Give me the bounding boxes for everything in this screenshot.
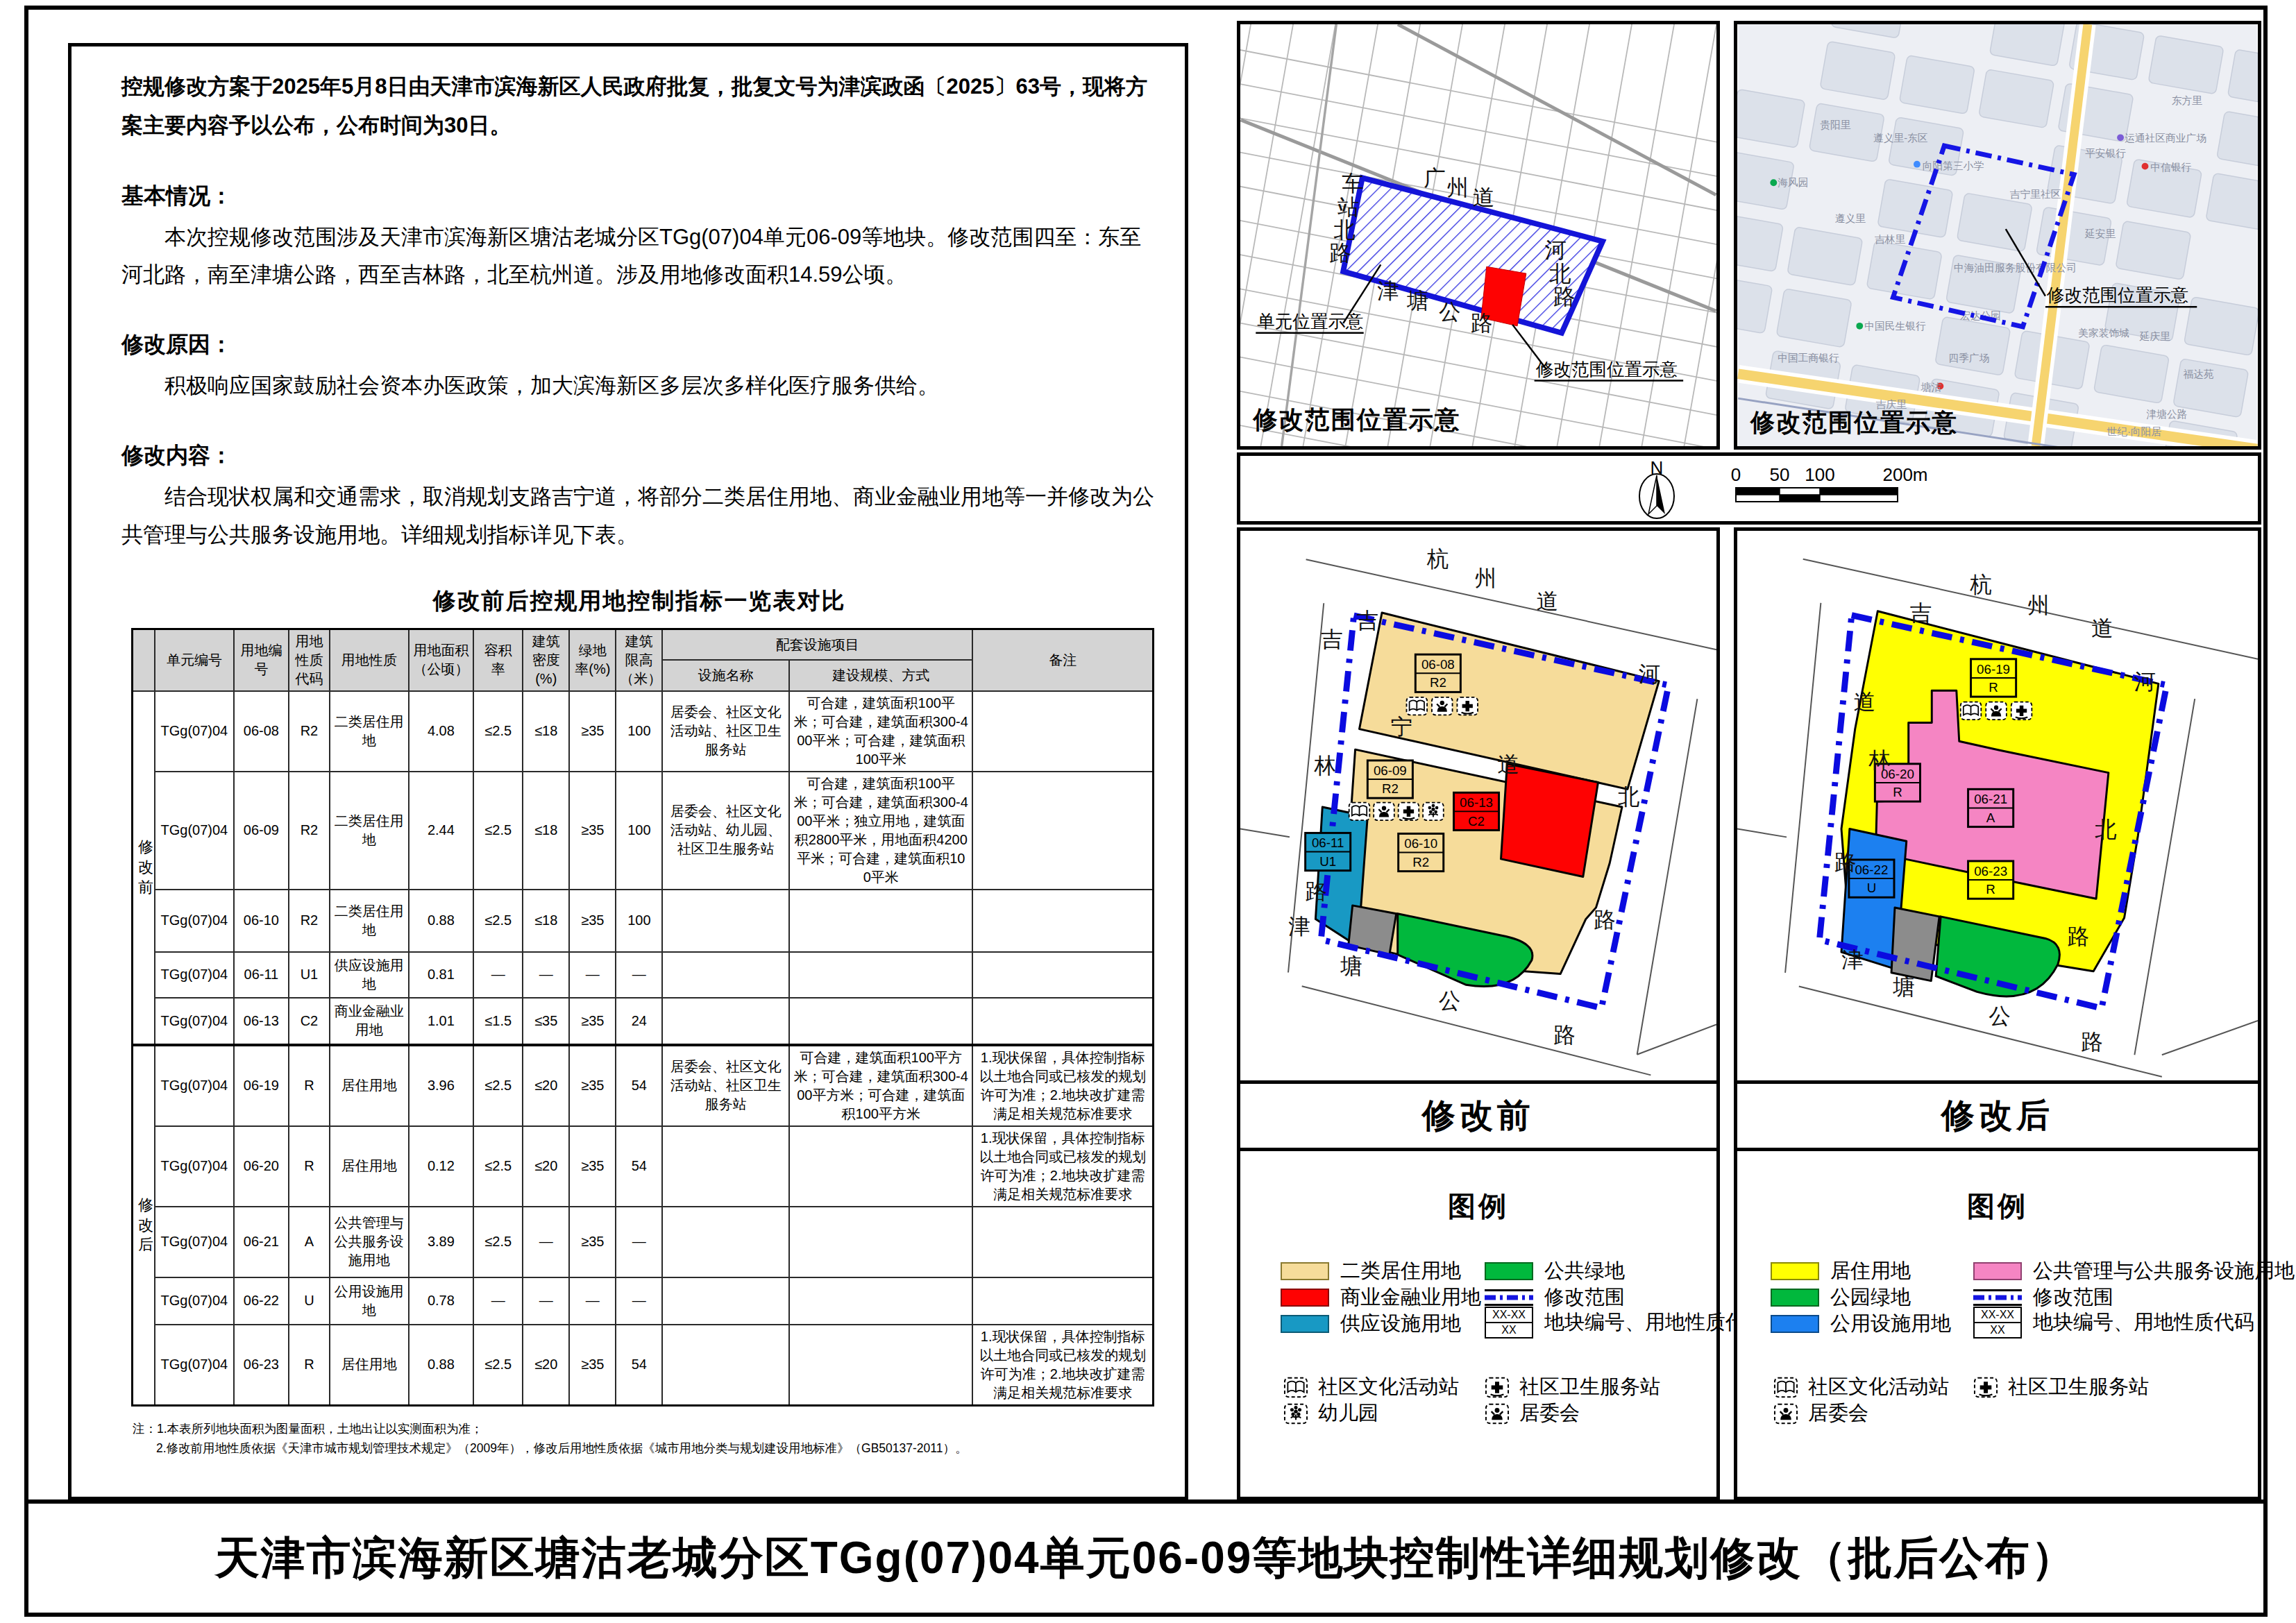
- header-unit-no: 单元编号: [155, 629, 234, 691]
- table-cell: 2.44: [409, 772, 473, 890]
- road-label-char: 津: [1377, 279, 1399, 303]
- table-cell: 24: [616, 998, 662, 1045]
- swatch-public-admin-a: [1973, 1262, 2022, 1280]
- table-cell: [789, 998, 972, 1045]
- plot-code-box: XX-XXXX: [1973, 1307, 2022, 1339]
- section-heading-content: 修改内容：: [121, 441, 1157, 471]
- parcel-label-06-11: 06-11 U1: [1306, 833, 1351, 870]
- legend-label: 地块编号、用地性质代码: [2033, 1309, 2254, 1336]
- svg-text:A: A: [1986, 810, 1995, 825]
- table-cell: 二类居住用地: [330, 890, 409, 952]
- table-cell: [662, 1126, 789, 1207]
- table-cell: R: [289, 1126, 330, 1207]
- table-cell: [972, 890, 1153, 952]
- road-label-char: 路: [1553, 284, 1575, 309]
- section-heading-reason: 修改原因：: [121, 330, 1157, 360]
- road-label-char: 河: [1544, 238, 1566, 262]
- table-cell: 0.78: [409, 1277, 473, 1325]
- table-cell: 06-11: [234, 952, 289, 998]
- table-cell: ≤1.5: [473, 998, 523, 1045]
- table-cell: TGg(07)04: [155, 1126, 234, 1207]
- table-cell: 可合建，建筑面积100平米；可合建，建筑面积300-400平米；独立用地，建筑面…: [789, 772, 972, 890]
- table-cell: 1.01: [409, 998, 473, 1045]
- group-label: 修改前: [133, 691, 155, 1045]
- table-cell: 二类居住用地: [330, 691, 409, 772]
- table-cell: [662, 1325, 789, 1406]
- swatch-modify-range: [1973, 1289, 2022, 1306]
- table-cell: ≤2.5: [473, 890, 523, 952]
- banner: 天津市滨海新区塘沽老城分区TGg(07)04单元06-09等地块控制性详细规划修…: [28, 1499, 2263, 1613]
- road-label-char: 北: [1618, 784, 1640, 809]
- road-label-char: 吉: [1357, 608, 1379, 633]
- table-cell: 06-22: [234, 1277, 289, 1325]
- poi-label: 四季广场: [1948, 352, 1989, 364]
- table-cell: [662, 890, 789, 952]
- swatch-green-space: [1485, 1262, 1533, 1280]
- table-cell: [972, 952, 1153, 998]
- road-label-char: 塘: [1893, 974, 1915, 999]
- table-cell: U: [289, 1277, 330, 1325]
- poi-label: 中海油田服务股份有限公司: [1954, 262, 2077, 273]
- table-cell: [972, 998, 1153, 1045]
- svg-text:06-23: 06-23: [1974, 864, 2007, 878]
- road-label-char: 津: [1288, 914, 1310, 939]
- table-cell: [789, 890, 972, 952]
- road-label-char: 州: [1475, 566, 1497, 590]
- header-remark: 备注: [972, 629, 1153, 691]
- table-cell: 06-08: [234, 691, 289, 772]
- table-cell: ≤18: [523, 691, 569, 772]
- legend-icon-label: 幼儿园: [1318, 1400, 1378, 1427]
- header-facility-scale: 建设规模、方式: [789, 660, 972, 690]
- swatch-commercial-c2: [1281, 1289, 1329, 1307]
- road-label-char: 宁: [1391, 714, 1413, 739]
- table-cell: ≤2.5: [473, 1207, 523, 1277]
- road-label-char: 杭: [1970, 572, 1993, 597]
- svg-text:C2: C2: [1468, 814, 1485, 829]
- callout-scope-label: 修改范围位置示意: [1536, 359, 1678, 379]
- table-note-2: 2.修改前用地性质依据《天津市城市规划管理技术规定》（2009年），修改后用地性…: [133, 1438, 1157, 1458]
- scale-strip-canvas: N 0 50 100 200m: [1240, 456, 2258, 521]
- culture-station-icon: [1349, 803, 1370, 821]
- table-cell: ≤2.5: [473, 1045, 523, 1126]
- table-cell: 居住用地: [330, 1325, 409, 1406]
- road-label-char: 北: [2095, 817, 2117, 842]
- group-label: 修改后: [133, 1045, 155, 1406]
- road-label-char: 路: [1330, 241, 1351, 265]
- scale-tick-0: 0: [1731, 464, 1741, 485]
- swatch-park-green: [1771, 1289, 1819, 1307]
- svg-text:U: U: [1867, 881, 1877, 895]
- road-label-char: 路: [1553, 1022, 1576, 1047]
- table-cell: —: [473, 1277, 523, 1325]
- table-cell: 54: [616, 1325, 662, 1406]
- legend-label: 公共绿地: [1544, 1257, 1625, 1285]
- table-cell: ≤20: [523, 1325, 569, 1406]
- legend-title: 图例: [1240, 1187, 1716, 1225]
- svg-text:R: R: [1893, 785, 1902, 799]
- header-height-limit: 建筑限高（米）: [616, 629, 662, 691]
- parcel-label-06-10: 06-10 R2: [1399, 833, 1444, 871]
- poi-label: 福达苑: [2184, 368, 2214, 380]
- road-label-char: 北: [1333, 218, 1355, 242]
- svg-text:U1: U1: [1319, 854, 1336, 869]
- table-cell: 公共管理与公共服务设施用地: [330, 1207, 409, 1277]
- control-indicators-table: 单元编号 用地编号 用地性质代码 用地性质 用地面积（公顷） 容积率 建筑密度(…: [131, 628, 1154, 1407]
- table-cell: [789, 1207, 972, 1277]
- road-label-char: 路: [1471, 311, 1492, 335]
- svg-text:R2: R2: [1382, 781, 1399, 796]
- road-label-char: 公: [1439, 988, 1461, 1013]
- table-cell: 0.81: [409, 952, 473, 998]
- table-cell: ≤2.5: [473, 772, 523, 890]
- table-cell: ≤20: [523, 1126, 569, 1207]
- plan-bulletin-sheet: 控规修改方案于2025年5月8日由天津市滨海新区人民政府批复，批复文号为津滨政函…: [0, 0, 2296, 1623]
- road-label-char: 州: [2027, 593, 2050, 618]
- poi-label: 世纪·向阳居: [2107, 426, 2161, 437]
- poi-dot-icon: [2142, 163, 2149, 170]
- legend-icon-label: 社区卫生服务站: [1519, 1373, 1660, 1401]
- table-cell: 54: [616, 1045, 662, 1126]
- poi-label: 遵义里: [1835, 213, 1866, 224]
- table-cell: A: [289, 1207, 330, 1277]
- plot-code-box: XX-XXXX: [1485, 1307, 1533, 1339]
- poi-dot-icon: [1914, 161, 1921, 168]
- legend-icon-label: 居委会: [1808, 1400, 1868, 1427]
- road-label-char: 广: [1424, 166, 1445, 190]
- table-cell: 公用设施用地: [330, 1277, 409, 1325]
- road-label-char: 吉: [1910, 600, 1932, 625]
- poi-dot-icon: [1856, 323, 1863, 330]
- legend-label: 二类居住用地: [1340, 1257, 1461, 1285]
- road-label-char: 林: [1313, 753, 1336, 778]
- cross-icon: [1485, 1377, 1510, 1398]
- road-label-char: 公: [1989, 1003, 2011, 1028]
- table-cell: 3.96: [409, 1045, 473, 1126]
- table-cell: 0.88: [409, 890, 473, 952]
- legend-title: 图例: [1737, 1187, 2258, 1225]
- table-cell: ≤18: [523, 890, 569, 952]
- poi-label: 塘沽: [1921, 382, 1942, 393]
- legend-label: 修改范围: [2033, 1284, 2113, 1311]
- legend-label: 公园绿地: [1830, 1284, 1911, 1311]
- poi-label: 遵义里-东区: [1873, 133, 1928, 144]
- table-cell: 06-19: [234, 1045, 289, 1126]
- poi-label: 平安银行: [2085, 148, 2126, 159]
- table-cell: —: [523, 1207, 569, 1277]
- table-cell: —: [616, 1277, 662, 1325]
- parcel-label-06-08: 06-08 R2: [1415, 654, 1460, 692]
- svg-text:06-09: 06-09: [1374, 763, 1407, 778]
- table-cell: 居委会、社区文化活动站、社区卫生服务站: [662, 1045, 789, 1126]
- swatch-residential-r: [1771, 1262, 1819, 1280]
- table-cell: —: [616, 1207, 662, 1277]
- parcel-label-06-09: 06-09 R2: [1367, 760, 1412, 798]
- plan-before-panel: 06-08 R2 06-09 R2 06-13 C2: [1237, 527, 1720, 1500]
- table-cell: [972, 1207, 1153, 1277]
- residents-committee-icon: [1986, 702, 2007, 720]
- plan-before-caption: 修改前: [1240, 1080, 1716, 1151]
- legend-label: 公用设施用地: [1830, 1310, 1951, 1338]
- table-cell: [789, 952, 972, 998]
- table-cell: 居住用地: [330, 1126, 409, 1207]
- legend-icon-label: 社区文化活动站: [1808, 1373, 1949, 1401]
- header-facility-name: 设施名称: [662, 660, 789, 690]
- table-cell: —: [569, 952, 616, 998]
- poi-label: 贵阳里: [1820, 119, 1851, 130]
- table-cell: [972, 1277, 1153, 1325]
- callout-unit-label: 单元位置示意: [1257, 312, 1363, 331]
- table-cell: 06-21: [234, 1207, 289, 1277]
- table-cell: ≥35: [569, 1207, 616, 1277]
- table-cell: TGg(07)04: [155, 890, 234, 952]
- poi-label: 津塘公路: [2146, 409, 2187, 420]
- table-cell: TGg(07)04: [155, 1277, 234, 1325]
- scale-tick-50: 50: [1770, 464, 1790, 485]
- table-cell: [789, 1325, 972, 1406]
- road-label-char: 林: [1868, 747, 1891, 772]
- road-label-char: 公: [1439, 300, 1460, 324]
- header-plot-no: 用地编号: [234, 629, 289, 691]
- header-area: 用地面积（公顷）: [409, 629, 473, 691]
- poi-label: 延安里: [2084, 228, 2116, 239]
- table-cell: ≤2.5: [473, 1325, 523, 1406]
- health-station-icon: [1399, 803, 1419, 821]
- poi-label: 美家装饰城: [2078, 328, 2129, 339]
- unit-location-map: 广州道车站北路津塘公路河北路 单元位置示意 修改范围位置示意 修改范围位置示意: [1237, 21, 1720, 450]
- swatch-modify-range: [1485, 1289, 1533, 1306]
- table-cell: TGg(07)04: [155, 1325, 234, 1406]
- table-cell: 可合建，建筑面积100平方米；可合建，建筑面积300-400平方米；可合建，建筑…: [789, 1045, 972, 1126]
- road-label-char: 路: [1594, 907, 1617, 932]
- header-green-rate: 绿地率(%): [569, 629, 616, 691]
- table-cell: ≥35: [569, 691, 616, 772]
- table-cell: ≥35: [569, 772, 616, 890]
- web-map-caption: 修改范围位置示意: [1750, 409, 1958, 436]
- svg-text:06-11: 06-11: [1312, 835, 1344, 850]
- legend-label: 供应设施用地: [1340, 1310, 1461, 1338]
- road-label-char: 河: [1639, 661, 1661, 686]
- table-cell: ≥35: [569, 998, 616, 1045]
- legend-label: 居住用地: [1830, 1257, 1911, 1285]
- table-cell: 1.现状保留，具体控制指标以土地合同或已核发的规划许可为准；2.地块改扩建需满足…: [972, 1126, 1153, 1207]
- table-cell: R: [289, 1045, 330, 1126]
- header-use-name: 用地性质: [330, 629, 409, 691]
- table-cell: ≤18: [523, 772, 569, 890]
- poi-label: 延庆里: [2139, 331, 2171, 342]
- road-label-char: 道: [1498, 751, 1520, 776]
- table-cell: —: [523, 1277, 569, 1325]
- section-body-content: 结合现状权属和交通需求，取消规划支路吉宁道，将部分二类居住用地、商业金融业用地等…: [121, 478, 1157, 554]
- table-cell: R2: [289, 890, 330, 952]
- road-label-char: 车: [1342, 171, 1363, 196]
- road-label-char: 站: [1337, 195, 1359, 219]
- section-body-basic: 本次控规修改范围涉及天津市滨海新区塘沽老城分区TGg(07)04单元06-09等…: [121, 219, 1157, 294]
- swatch-supply-u1: [1281, 1315, 1329, 1333]
- scale-tick-100: 100: [1805, 464, 1834, 485]
- poi-label: 海风园: [1778, 177, 1808, 188]
- table-cell: 商业金融业用地: [330, 998, 409, 1045]
- poi-label: 中国工商银行: [1778, 352, 1839, 364]
- table-cell: TGg(07)04: [155, 772, 234, 890]
- table-cell: 居委会、社区文化活动站、社区卫生服务站: [662, 691, 789, 772]
- table-cell: 06-13: [234, 998, 289, 1045]
- road-label-char: 杭: [1426, 546, 1449, 571]
- table-cell: 1.现状保留，具体控制指标以土地合同或已核发的规划许可为准；2.地块改扩建需满足…: [972, 1325, 1153, 1406]
- table-title: 修改前后控规用地控制指标一览表对比: [121, 586, 1157, 617]
- table-cell: ≤35: [523, 998, 569, 1045]
- road-label-char: 河: [2134, 669, 2156, 694]
- table-cell: —: [473, 952, 523, 998]
- svg-text:06-21: 06-21: [1974, 792, 2007, 806]
- table-cell: TGg(07)04: [155, 1045, 234, 1126]
- plan-after-caption: 修改后: [1737, 1080, 2258, 1151]
- location-map-caption: 修改范围位置示意: [1252, 406, 1460, 434]
- header-group: [133, 629, 155, 691]
- table-cell: [972, 772, 1153, 890]
- legend-after: 图例 居住用地 公园绿地 公用设施用地 公共管理与公共服务设施用地 修改范围 X…: [1737, 1187, 2258, 1527]
- culture-station-icon: [1406, 697, 1427, 715]
- header-density: 建筑密度(%): [523, 629, 569, 691]
- table-cell: 二类居住用地: [330, 772, 409, 890]
- parcel-06-13-c2: [1501, 764, 1598, 877]
- table-cell: TGg(07)04: [155, 952, 234, 998]
- book-icon: [1773, 1377, 1798, 1398]
- legend-icon-label: 社区文化活动站: [1318, 1373, 1459, 1401]
- legend-label: 地块编号、用地性质代码: [1544, 1309, 1766, 1336]
- table-cell: 居住用地: [330, 1045, 409, 1126]
- svg-text:06-19: 06-19: [1977, 662, 2010, 677]
- svg-text:06-13: 06-13: [1460, 795, 1493, 810]
- header-use-code: 用地性质代码: [289, 629, 330, 691]
- table-note-1: 注：1.本表所列地块面积为图量面积，土地出让以实测面积为准；: [133, 1419, 1157, 1438]
- table-cell: ≥35: [569, 1126, 616, 1207]
- parcel-label-06-13: 06-13 C2: [1454, 792, 1499, 830]
- table-cell: ≤2.5: [473, 691, 523, 772]
- health-station-icon: [2011, 702, 2032, 720]
- table-cell: —: [569, 1277, 616, 1325]
- table-cell: TGg(07)04: [155, 1207, 234, 1277]
- legend-icon-label: 社区卫生服务站: [2008, 1373, 2149, 1401]
- svg-text:06-22: 06-22: [1855, 863, 1888, 877]
- table-cell: ≤20: [523, 1045, 569, 1126]
- scale-bar: [1736, 488, 1898, 502]
- web-map-canvas: 贵阳里遵义里-东区向阳第三小学海风园遵义里吉林里吉宁里社区延安里东方里运通社区商…: [1737, 24, 2258, 446]
- scale-tick-200m: 200m: [1882, 464, 1927, 485]
- table-cell: —: [523, 952, 569, 998]
- table-cell: 06-23: [234, 1325, 289, 1406]
- poi-label: 东方里: [2172, 95, 2203, 106]
- table-cell: [972, 691, 1153, 772]
- callout-scope-label: 修改范围位置示意: [2047, 285, 2189, 305]
- table-cell: 1.现状保留，具体控制指标以土地合同或已核发的规划许可为准；2.地块改扩建需满足…: [972, 1045, 1153, 1126]
- table-cell: 4.08: [409, 691, 473, 772]
- road-label-char: 塘: [1340, 953, 1362, 978]
- table-cell: TGg(07)04: [155, 998, 234, 1045]
- svg-text:R2: R2: [1430, 675, 1446, 690]
- location-map-canvas: 广州道车站北路津塘公路河北路 单元位置示意 修改范围位置示意 修改范围位置示意: [1240, 24, 1716, 446]
- svg-text:06-10: 06-10: [1404, 836, 1437, 851]
- table-cell: ≥35: [569, 890, 616, 952]
- table-cell: ≤2.5: [473, 1126, 523, 1207]
- svg-text:06-08: 06-08: [1421, 657, 1455, 672]
- poi-label: 向阳第三小学: [1923, 160, 1984, 171]
- header-far: 容积率: [473, 629, 523, 691]
- table-cell: 100: [616, 890, 662, 952]
- table-cell: 06-10: [234, 890, 289, 952]
- poi-label: 中信银行: [2150, 162, 2191, 173]
- culture-station-icon: [1961, 702, 1982, 720]
- swatch-residential-r2: [1281, 1262, 1329, 1280]
- table-cell: [662, 998, 789, 1045]
- table-cell: 06-20: [234, 1126, 289, 1207]
- banner-title: 天津市滨海新区塘沽老城分区TGg(07)04单元06-09等地块控制性详细规划修…: [215, 1528, 2077, 1588]
- road-label-char: 塘: [1407, 289, 1428, 313]
- table-cell: 可合建，建筑面积100平米；可合建，建筑面积300-400平米；可合建，建筑面积…: [789, 691, 972, 772]
- legend-label: 修改范围: [1544, 1284, 1625, 1311]
- poi-label: 运通社区商业广场: [2125, 133, 2206, 144]
- table-cell: 54: [616, 1126, 662, 1207]
- table-cell: C2: [289, 998, 330, 1045]
- kindergarten-icon: [1423, 803, 1444, 821]
- table-cell: TGg(07)04: [155, 691, 234, 772]
- poi-dot-icon: [2117, 134, 2124, 141]
- notice-panel: 控规修改方案于2025年5月8日由天津市滨海新区人民政府批复，批复文号为津滨政函…: [68, 43, 1188, 1500]
- legend-before: 图例 二类居住用地 商业金融业用地 供应设施用地 公共绿地 修改范围 XX-XX…: [1240, 1187, 1716, 1527]
- section-heading-basic: 基本情况：: [121, 181, 1157, 212]
- legend-label: 商业金融业用地: [1340, 1284, 1481, 1311]
- section-body-reason: 积极响应国家鼓励社会资本办医政策，加大滨海新区多层次多样化医疗服务供给。: [121, 367, 1157, 405]
- road-label-char: 州: [1447, 176, 1469, 200]
- legend-label: 公共管理与公共服务设施用地: [2033, 1257, 2295, 1285]
- plan-after-map: 06-19 R 06-20 R 06-21 A 06-22: [1737, 531, 2258, 1080]
- residents-committee-icon: [1374, 803, 1394, 821]
- scope-location-web-map: 贵阳里遵义里-东区向阳第三小学海风园遵义里吉林里吉宁里社区延安里东方里运通社区商…: [1734, 21, 2261, 450]
- parcel-label-06-23: 06-23 R: [1968, 861, 2014, 899]
- table-cell: [662, 1207, 789, 1277]
- swatch-utility-u: [1771, 1315, 1819, 1333]
- road-label-char: 道: [1473, 185, 1494, 210]
- table-cell: 0.12: [409, 1126, 473, 1207]
- header-facilities-group: 配套设施项目: [662, 629, 972, 660]
- parcel-label-06-21: 06-21 A: [1968, 789, 2014, 826]
- table-cell: 居委会、社区文化活动站、幼儿园、社区卫生服务站: [662, 772, 789, 890]
- table-cell: R: [289, 1325, 330, 1406]
- table-cell: —: [616, 952, 662, 998]
- residents-committee-icon: [1432, 697, 1453, 715]
- table-cell: 3.89: [409, 1207, 473, 1277]
- table-cell: U1: [289, 952, 330, 998]
- person-icon: [1485, 1403, 1510, 1425]
- poi-label: 吉林里: [1875, 234, 1906, 245]
- svg-text:R2: R2: [1412, 855, 1429, 869]
- svg-text:R: R: [1989, 680, 1998, 695]
- road-label-char: 道: [2091, 615, 2113, 640]
- table-cell: R2: [289, 691, 330, 772]
- health-station-icon: [1457, 697, 1478, 715]
- table-cell: [662, 1277, 789, 1325]
- svg-text:R: R: [1986, 882, 1995, 897]
- compass-scale-strip: N 0 50 100 200m: [1237, 452, 2261, 525]
- table-cell: 100: [616, 772, 662, 890]
- cross-icon: [1973, 1377, 1998, 1398]
- table-cell: 100: [616, 691, 662, 772]
- road-label-char: 吉: [1321, 627, 1343, 652]
- table-cell: 06-09: [234, 772, 289, 890]
- table-cell: [789, 1126, 972, 1207]
- poi-label: 中国民生银行: [1864, 321, 1926, 332]
- parcel-label-06-19: 06-19 R: [1971, 659, 2016, 697]
